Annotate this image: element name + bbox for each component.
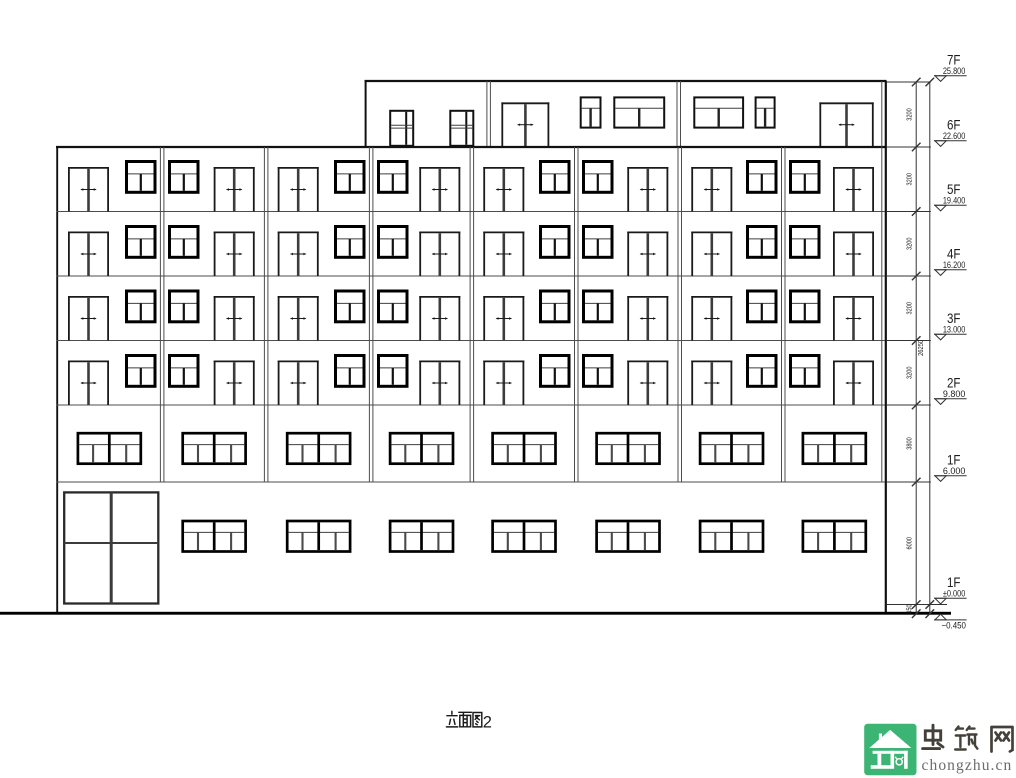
- svg-text:1F: 1F: [947, 451, 961, 467]
- svg-text:1F: 1F: [947, 574, 961, 590]
- svg-text:2F: 2F: [947, 374, 961, 390]
- svg-text:3200: 3200: [906, 302, 913, 315]
- svg-text:7F: 7F: [947, 51, 961, 67]
- svg-text:−0.450: −0.450: [941, 620, 966, 630]
- svg-text:5F: 5F: [947, 181, 961, 197]
- svg-text:2: 2: [483, 714, 492, 732]
- svg-text:3200: 3200: [906, 173, 913, 186]
- svg-text:3F: 3F: [947, 310, 961, 326]
- svg-text:3800: 3800: [906, 437, 913, 450]
- svg-text:450: 450: [906, 604, 913, 614]
- svg-text:26250: 26250: [918, 340, 925, 356]
- svg-text:3200: 3200: [906, 108, 913, 121]
- svg-text:chongzhu.cn: chongzhu.cn: [922, 757, 1013, 774]
- svg-text:6F: 6F: [947, 116, 961, 132]
- svg-text:4F: 4F: [947, 245, 961, 261]
- svg-text:3200: 3200: [906, 366, 913, 379]
- svg-text:6000: 6000: [906, 537, 913, 550]
- svg-text:3200: 3200: [906, 237, 913, 250]
